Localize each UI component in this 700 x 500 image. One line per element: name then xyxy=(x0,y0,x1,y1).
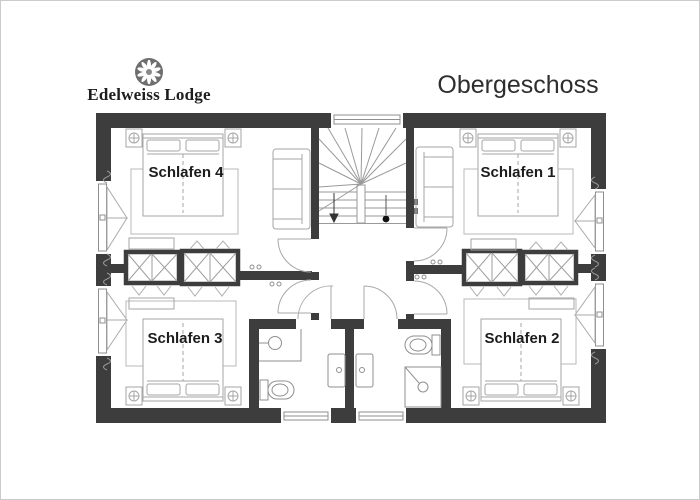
room-schlafen-1 xyxy=(416,129,576,250)
toilet xyxy=(405,335,440,355)
door-schlafen2 xyxy=(414,281,447,314)
nightstand-lamp xyxy=(563,387,579,405)
room-schlafen-2 xyxy=(463,298,579,405)
built-in-wardrobes xyxy=(126,241,576,296)
floorplan-page: Edelweiss Lodge Obergeschoss xyxy=(0,0,700,500)
nightstand-lamp xyxy=(460,129,476,147)
nightstand-lamp xyxy=(126,387,142,405)
wardrobe xyxy=(182,251,238,284)
window-bath-right xyxy=(356,407,406,424)
wardrobe xyxy=(464,251,520,284)
wardrobe xyxy=(126,252,179,283)
stair-start-post xyxy=(383,195,390,222)
sink-counter xyxy=(259,329,301,361)
room-label-schlafen-1: Schlafen 1 xyxy=(480,164,555,181)
sofa xyxy=(416,147,453,227)
window-bath-left xyxy=(281,407,331,424)
sofa xyxy=(273,149,310,229)
door-schlafen4 xyxy=(278,239,311,272)
bench xyxy=(129,298,174,309)
nightstand-lamp xyxy=(560,129,576,147)
stair-treads xyxy=(319,128,406,224)
room-label-schlafen-3: Schlafen 3 xyxy=(147,330,222,347)
door-schlafen1 xyxy=(414,228,447,261)
nightstand-lamp xyxy=(463,387,479,405)
bathroom-right xyxy=(356,335,441,407)
staircase xyxy=(319,128,406,224)
window-schlafen4 xyxy=(95,171,127,266)
door-schlafen3 xyxy=(278,280,311,313)
window-stairwell xyxy=(331,112,403,129)
window-schlafen1 xyxy=(575,177,607,267)
nightstand-lamp xyxy=(225,387,241,405)
bathroom-left xyxy=(259,329,345,400)
shower xyxy=(405,367,441,407)
wardrobe xyxy=(523,252,576,283)
nightstand-lamp xyxy=(225,129,241,147)
window-schlafen3 xyxy=(95,273,127,370)
bench xyxy=(471,239,516,250)
vanity-basin xyxy=(328,354,345,387)
floorplan-drawing: Schlafen 4 Schlafen 1 Schlafen 3 Schlafe… xyxy=(1,1,699,499)
door-bath-right xyxy=(364,286,397,319)
toilet xyxy=(260,380,294,400)
nightstand-lamp xyxy=(126,129,142,147)
room-schlafen-3 xyxy=(126,298,241,405)
bench xyxy=(529,298,574,309)
room-schlafen-4 xyxy=(126,129,310,249)
room-label-schlafen-4: Schlafen 4 xyxy=(148,164,224,181)
bench xyxy=(129,238,174,249)
vanity-basin xyxy=(356,354,373,387)
room-label-schlafen-2: Schlafen 2 xyxy=(484,330,559,347)
